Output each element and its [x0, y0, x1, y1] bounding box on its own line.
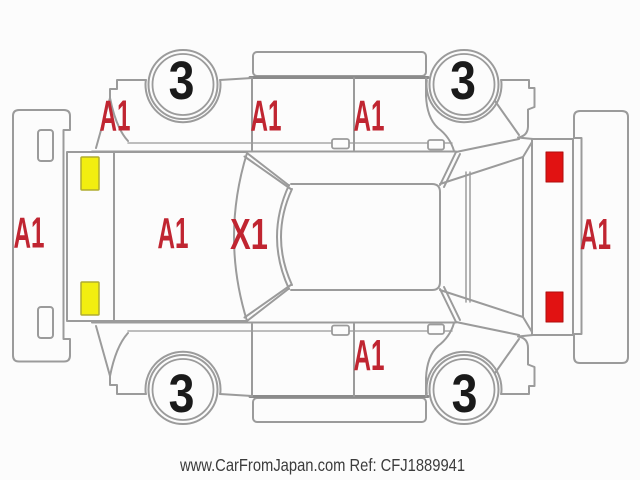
svg-text:A1: A1 — [354, 330, 385, 380]
svg-text:A1: A1 — [158, 208, 189, 258]
svg-text:3: 3 — [169, 50, 195, 111]
svg-text:www.CarFromJapan.com Ref: CFJ1: www.CarFromJapan.com Ref: CFJ1889941 — [179, 456, 465, 476]
svg-text:3: 3 — [169, 363, 195, 424]
svg-text:3: 3 — [452, 363, 478, 424]
svg-text:X1: X1 — [230, 211, 268, 260]
svg-text:A1: A1 — [251, 91, 282, 141]
svg-text:A1: A1 — [580, 209, 611, 259]
svg-text:A1: A1 — [14, 208, 45, 258]
svg-text:3: 3 — [450, 50, 476, 111]
svg-text:A1: A1 — [100, 91, 131, 141]
svg-text:A1: A1 — [354, 91, 385, 141]
